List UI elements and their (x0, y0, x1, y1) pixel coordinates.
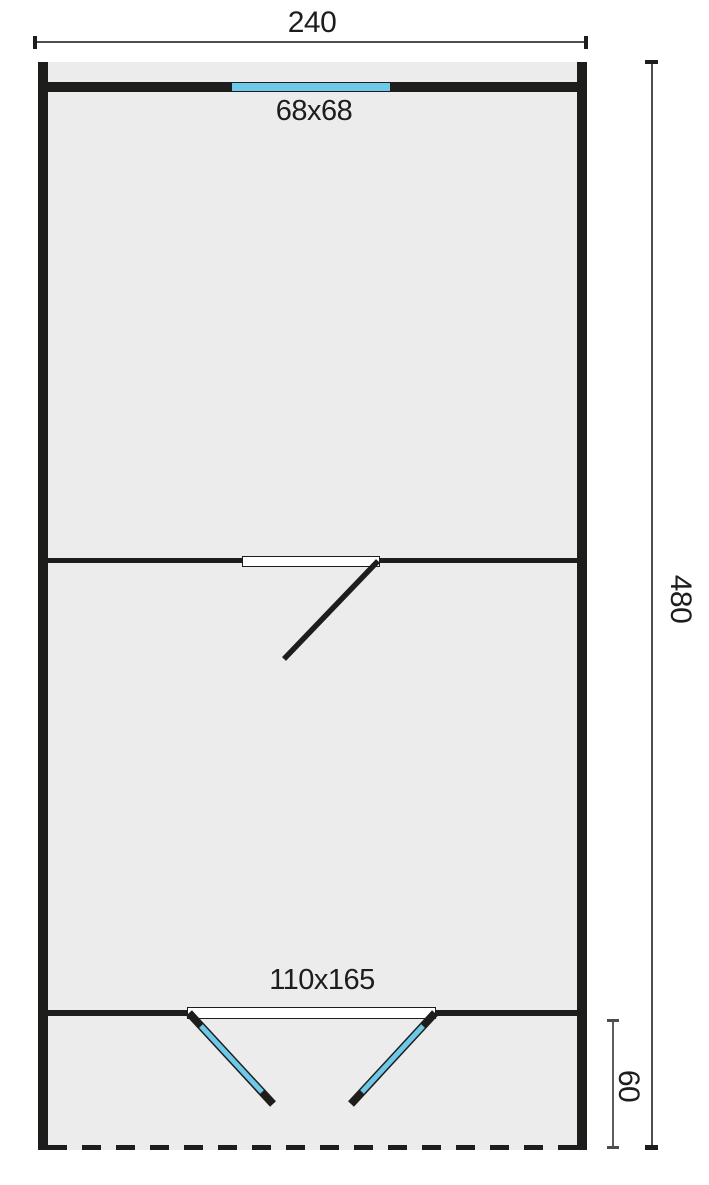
dimension-label-depth: 480 (664, 569, 696, 629)
dimension-label-width: 240 (162, 7, 462, 39)
interior-door-opening (242, 556, 380, 567)
partition-wall-left-segment (48, 558, 242, 563)
wall-left (38, 62, 48, 1150)
dimension-tick-porch-bottom (607, 1146, 619, 1149)
floor-plan-canvas: 240 480 60 68x68 110x165 (0, 0, 709, 1185)
wall-rear-left-segment (48, 82, 232, 92)
rear-window (232, 82, 390, 92)
window-size-label: 68x68 (214, 95, 414, 127)
front-door-size-label: 110x165 (222, 964, 422, 996)
front-wall-right-segment (436, 1010, 577, 1016)
dimension-tick-porch-top (607, 1019, 619, 1022)
front-door-opening (187, 1007, 436, 1019)
dimension-line-depth (651, 62, 653, 1148)
dimension-tick-depth-bottom (645, 1145, 658, 1150)
partition-wall-right-segment (380, 558, 577, 563)
dimension-tick-depth-top (645, 60, 658, 64)
wall-rear-right-segment (390, 82, 577, 92)
wall-right (577, 62, 587, 1150)
front-wall-left-segment (48, 1010, 187, 1016)
dimension-tick-width-left (33, 36, 37, 49)
dimension-tick-width-right (584, 36, 588, 49)
dimension-line-width (35, 41, 586, 43)
dimension-label-porch: 60 (612, 1066, 644, 1106)
